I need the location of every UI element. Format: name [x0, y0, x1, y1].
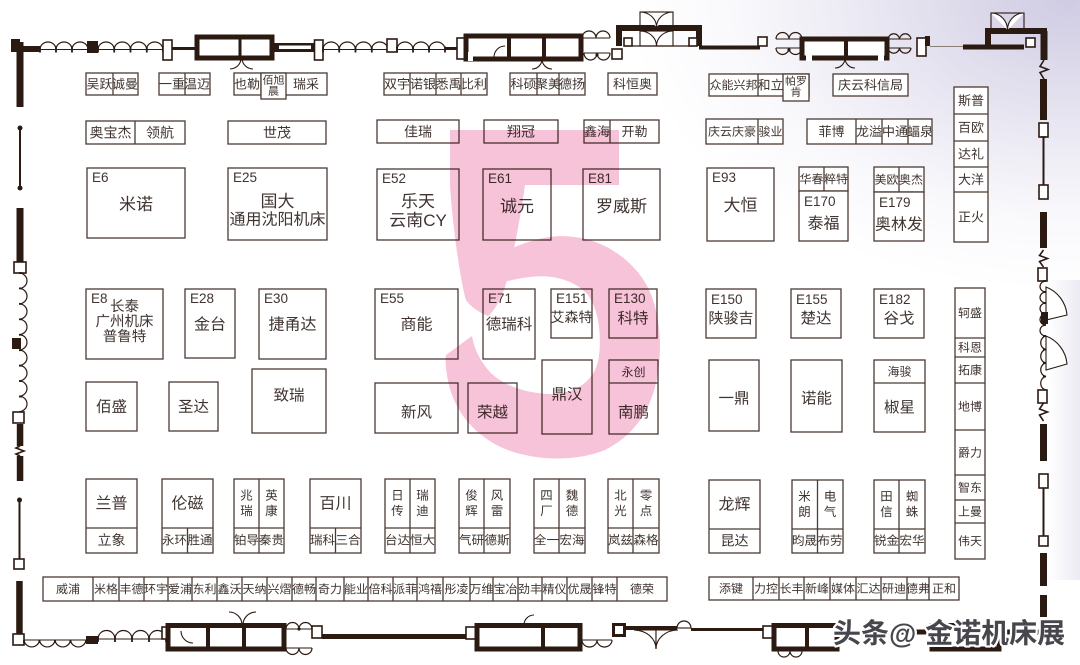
svg-text:E170: E170 [804, 194, 836, 209]
svg-text:E55: E55 [380, 291, 404, 306]
svg-text:E8: E8 [91, 291, 108, 306]
svg-text:E182: E182 [879, 292, 911, 307]
svg-text:E93: E93 [712, 170, 736, 185]
svg-text:E155: E155 [796, 292, 828, 307]
svg-text:E25: E25 [233, 170, 257, 185]
svg-text:E28: E28 [190, 291, 214, 306]
svg-text:E30: E30 [264, 291, 288, 306]
svg-text:E151: E151 [556, 291, 588, 306]
svg-text:@: @ [889, 618, 916, 649]
svg-text:E150: E150 [711, 292, 743, 307]
svg-text:E179: E179 [879, 195, 911, 210]
svg-text:E6: E6 [92, 170, 109, 185]
svg-text:CY: CY [423, 211, 447, 230]
svg-text:E52: E52 [382, 171, 406, 186]
